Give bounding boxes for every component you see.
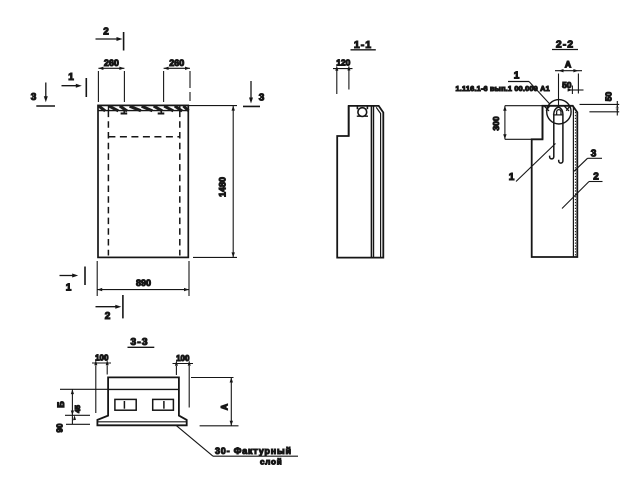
svg-text:1: 1 bbox=[509, 172, 515, 183]
svg-text:30- Фактурный: 30- Фактурный bbox=[215, 446, 292, 456]
svg-text:1480: 1480 bbox=[218, 177, 228, 197]
svg-text:А: А bbox=[219, 403, 229, 410]
svg-text:260: 260 bbox=[169, 58, 184, 68]
svg-text:890: 890 bbox=[136, 278, 151, 288]
svg-text:2-2: 2-2 bbox=[556, 39, 574, 51]
svg-text:300: 300 bbox=[491, 116, 501, 130]
svg-text:3: 3 bbox=[31, 92, 37, 103]
svg-text:3-3: 3-3 bbox=[130, 336, 148, 348]
svg-text:100: 100 bbox=[95, 353, 109, 362]
svg-text:1: 1 bbox=[66, 283, 72, 294]
svg-text:1.116.1-6 вып.1 00.000 А1: 1.116.1-6 вып.1 00.000 А1 bbox=[456, 84, 550, 93]
svg-text:120: 120 bbox=[336, 58, 350, 68]
svg-text:А: А bbox=[565, 60, 572, 70]
svg-text:50: 50 bbox=[562, 80, 572, 90]
svg-text:45: 45 bbox=[75, 405, 82, 413]
svg-text:3: 3 bbox=[259, 93, 265, 104]
svg-text:2: 2 bbox=[103, 27, 109, 38]
svg-text:2: 2 bbox=[105, 311, 111, 322]
svg-text:слой: слой bbox=[260, 458, 282, 467]
svg-text:50: 50 bbox=[604, 92, 614, 102]
svg-text:260: 260 bbox=[104, 58, 119, 68]
svg-text:2: 2 bbox=[593, 172, 599, 183]
svg-text:100: 100 bbox=[176, 354, 190, 363]
svg-text:90: 90 bbox=[56, 423, 65, 432]
svg-text:Б: Б bbox=[56, 401, 66, 408]
svg-text:1: 1 bbox=[514, 71, 520, 82]
svg-text:1: 1 bbox=[68, 72, 74, 83]
